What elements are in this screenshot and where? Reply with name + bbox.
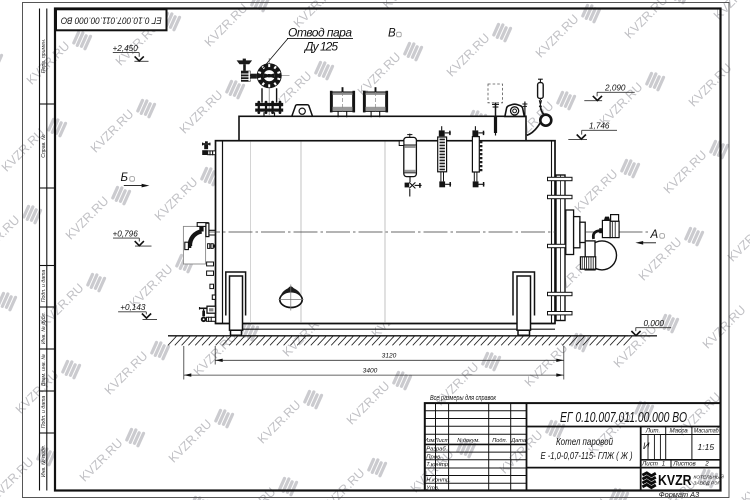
svg-text:Подп. и дата: Подп. и дата <box>41 396 47 429</box>
svg-text:KVZR.RU: KVZR.RU <box>739 458 750 500</box>
svg-text:Справ. №: Справ. № <box>41 134 47 158</box>
svg-text:Все размеры для справок: Все размеры для справок <box>430 393 496 402</box>
svg-text:KVZR.RU: KVZR.RU <box>533 12 582 61</box>
svg-text:N докум.: N докум. <box>457 438 480 444</box>
svg-text:Пров.: Пров. <box>426 454 441 460</box>
svg-text:KVZR.RU: KVZR.RU <box>622 0 671 42</box>
svg-text:KVZR.RU: KVZR.RU <box>444 31 493 80</box>
svg-text:KVZR.RU: KVZR.RU <box>166 417 215 466</box>
svg-text:KVZR.RU: KVZR.RU <box>686 61 735 110</box>
svg-text:KVZR.RU: KVZR.RU <box>24 39 73 88</box>
svg-text:Подп.: Подп. <box>492 438 507 444</box>
svg-text:Б: Б <box>121 172 129 184</box>
svg-text:ЕГ 0.10.007.011.00.000 ВО: ЕГ 0.10.007.011.00.000 ВО <box>560 410 687 426</box>
svg-text:KVZR.RU: KVZR.RU <box>49 0 98 1</box>
svg-text:KVZR.RU: KVZR.RU <box>611 322 660 371</box>
svg-text:KVZR.RU: KVZR.RU <box>319 466 368 500</box>
svg-text:Подп. и дата: Подп. и дата <box>41 270 47 303</box>
svg-text:KVZR.RU: KVZR.RU <box>177 88 226 137</box>
svg-text:0,000: 0,000 <box>644 319 665 328</box>
svg-text:Перв. примен.: Перв. примен. <box>41 39 47 73</box>
svg-text:Формат А3: Формат А3 <box>659 490 700 499</box>
svg-text:KVZR.RU: KVZR.RU <box>711 0 750 23</box>
svg-text:KVZR.RU: KVZR.RU <box>63 194 112 243</box>
svg-text:KVZR.RU: KVZR.RU <box>522 341 571 390</box>
svg-text:Взам. инв. №: Взам. инв. № <box>41 354 47 386</box>
svg-text:1:15: 1:15 <box>698 442 715 452</box>
svg-text:Инв. № подл.: Инв. № подл. <box>41 445 47 477</box>
svg-text:А: А <box>650 229 659 241</box>
svg-text:Утв.: Утв. <box>425 485 439 491</box>
svg-text:2: 2 <box>704 461 709 468</box>
svg-text:KVZR.RU: KVZR.RU <box>355 50 404 99</box>
svg-text:+2,450: +2,450 <box>113 44 139 53</box>
svg-text:KVZR: KVZR <box>658 472 692 489</box>
svg-text:Т.контр.: Т.контр. <box>426 462 449 468</box>
svg-text:Н.контр.: Н.контр. <box>426 478 451 484</box>
svg-text:Масса: Масса <box>669 428 688 435</box>
svg-text:Котел паровой: Котел паровой <box>556 436 613 448</box>
svg-text:1,746: 1,746 <box>589 122 610 131</box>
svg-text:Разраб.: Разраб. <box>426 447 447 453</box>
svg-text:ЗАВОД РЭП: ЗАВОД РЭП <box>694 481 722 487</box>
svg-text:И: И <box>643 441 650 451</box>
svg-text:1: 1 <box>662 461 665 468</box>
svg-text:Лист: Лист <box>434 438 450 444</box>
svg-text:KVZR.RU: KVZR.RU <box>572 167 621 216</box>
svg-text:KVZR.RU: KVZR.RU <box>88 107 137 156</box>
svg-text:KVZR.RU: KVZR.RU <box>152 175 201 224</box>
svg-text:KVZR.RU: KVZR.RU <box>255 398 304 447</box>
svg-text:2,090: 2,090 <box>604 84 626 93</box>
svg-text:Лит.: Лит. <box>645 428 661 435</box>
svg-text:KVZR.RU: KVZR.RU <box>77 436 126 485</box>
svg-text:Лист: Лист <box>641 461 658 468</box>
svg-text:KVZR.RU: KVZR.RU <box>344 379 393 428</box>
svg-text:Е -1,0-0,07-115- ГЛЖ ( Ж ): Е -1,0-0,07-115- ГЛЖ ( Ж ) <box>541 451 633 462</box>
svg-text:+0,143: +0,143 <box>120 303 146 312</box>
svg-text:+0,796: +0,796 <box>113 229 139 238</box>
svg-text:KVZR.RU: KVZR.RU <box>0 455 37 500</box>
svg-text:В: В <box>388 28 396 40</box>
svg-text:KVZR.RU: KVZR.RU <box>102 349 151 398</box>
svg-text:3400: 3400 <box>363 368 378 375</box>
svg-text:Листов: Листов <box>672 461 696 468</box>
svg-text:KVZR.RU: KVZR.RU <box>380 0 429 12</box>
svg-text:3120: 3120 <box>382 353 397 360</box>
svg-text:KVZR.RU: KVZR.RU <box>661 148 710 197</box>
svg-text:KVZR.RU: KVZR.RU <box>0 0 9 20</box>
svg-text:Ду 125: Ду 125 <box>303 40 338 54</box>
svg-text:Инв. № дубл.: Инв. № дубл. <box>41 312 47 344</box>
svg-text:KVZR.RU: KVZR.RU <box>700 303 749 352</box>
svg-text:Масштаб: Масштаб <box>694 428 719 435</box>
svg-text:ЕГ 0.10.007.011.00.000 ВО: ЕГ 0.10.007.011.00.000 ВО <box>60 14 162 25</box>
svg-text:Дата: Дата <box>510 438 526 444</box>
svg-text:Отвод пара: Отвод пара <box>288 25 352 39</box>
svg-text:KVZR.RU: KVZR.RU <box>0 213 23 262</box>
